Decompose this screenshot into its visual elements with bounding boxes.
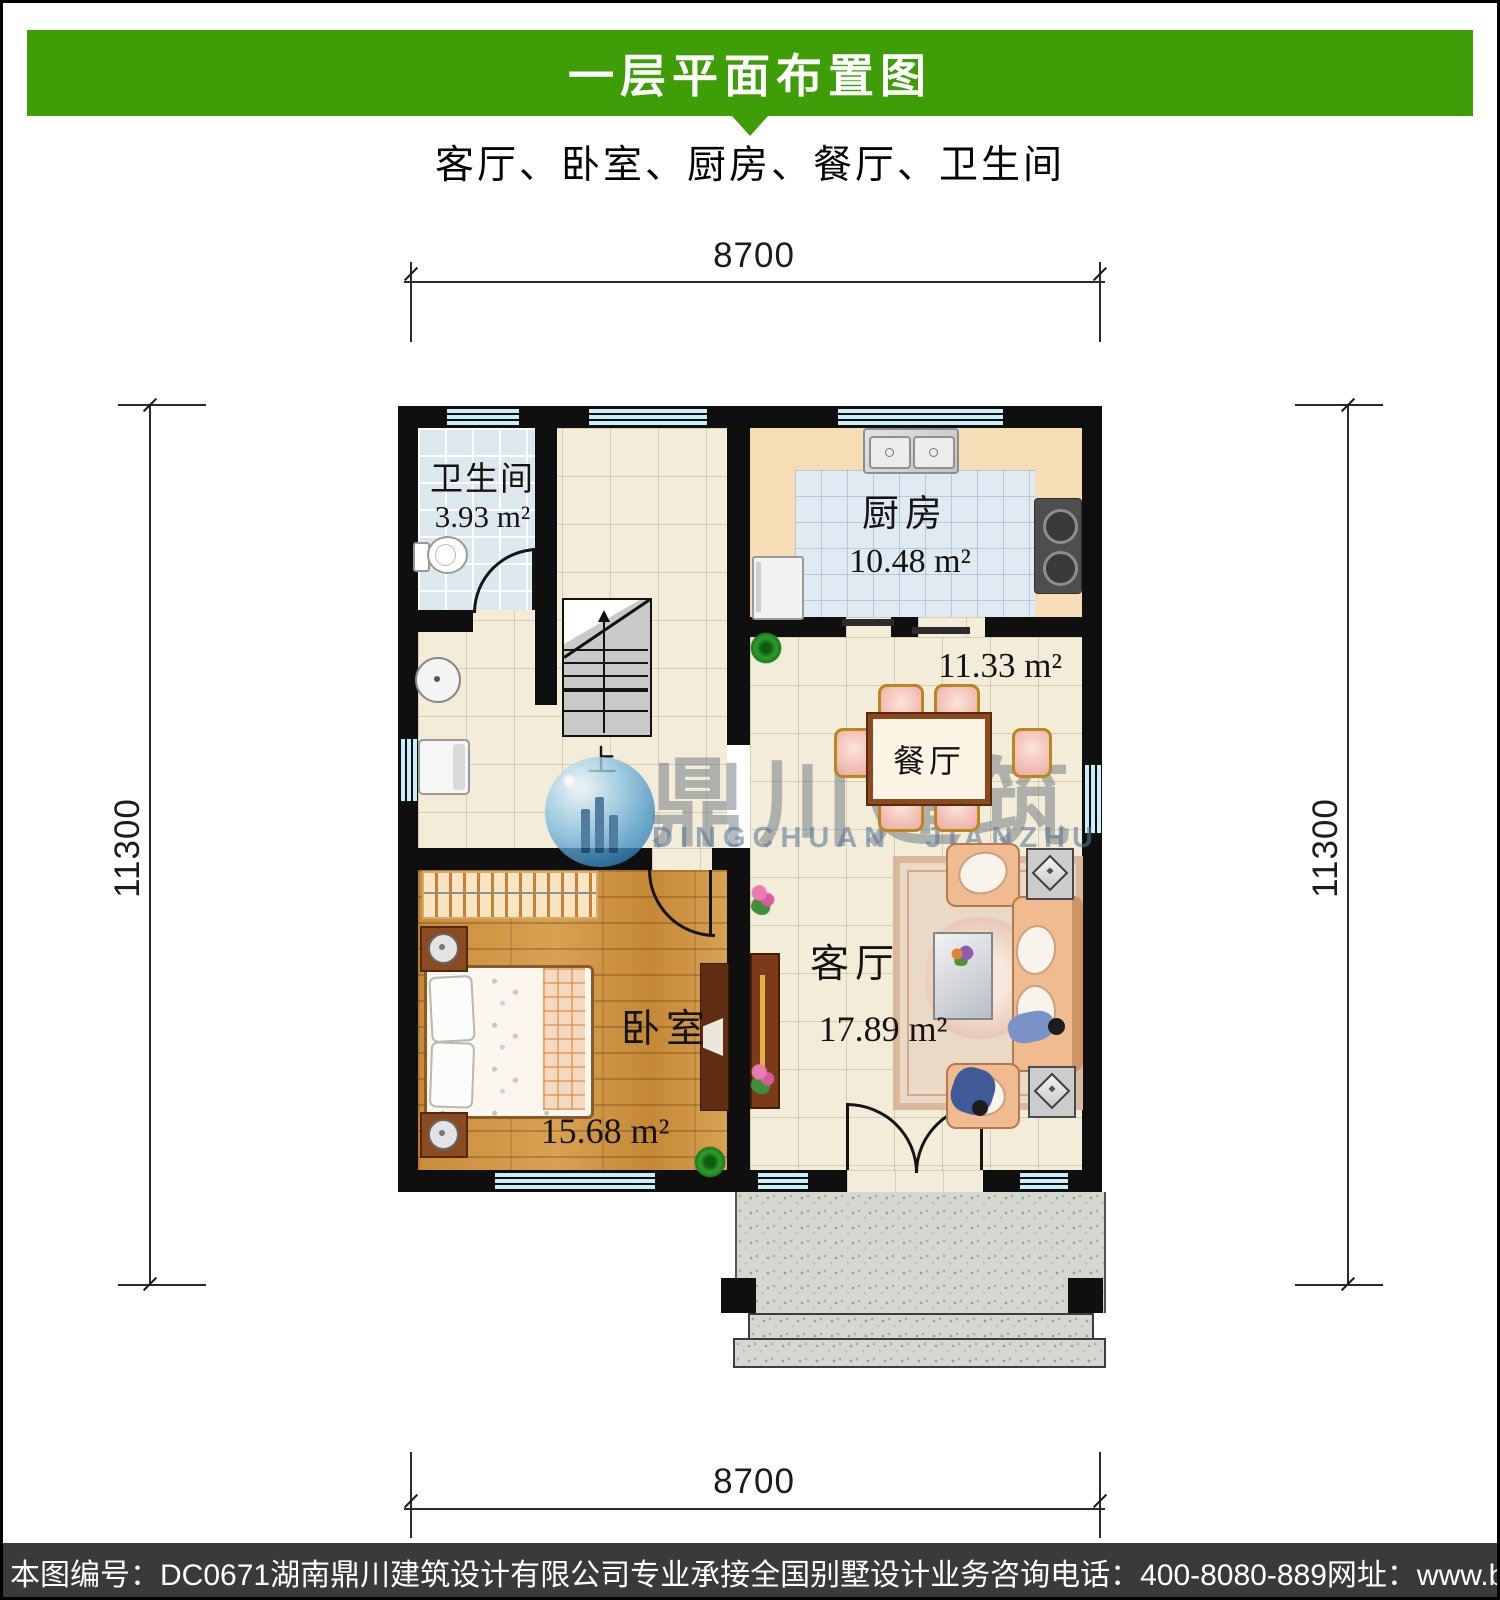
table-flowers-icon xyxy=(948,944,974,966)
dining-room-label: 餐厅 xyxy=(893,736,965,782)
kitchen-sliding-door xyxy=(842,619,894,626)
person-figure xyxy=(1048,1018,1065,1035)
dim-extension xyxy=(410,1452,412,1538)
dim-extension xyxy=(1295,1284,1383,1286)
dim-line-right xyxy=(1347,405,1349,1285)
sofa xyxy=(1012,896,1083,1072)
toilet-icon xyxy=(427,536,468,574)
dim-line-top xyxy=(404,281,1105,283)
room-list-subtitle: 客厅、卧室、厨房、餐厅、卫生间 xyxy=(0,134,1500,190)
kitchen-sliding-door xyxy=(912,627,970,634)
watermark-logo-icon xyxy=(545,757,655,867)
porch-column xyxy=(1068,1278,1103,1313)
window xyxy=(398,739,418,801)
dim-value-top: 8700 xyxy=(604,236,904,276)
porch-slab xyxy=(735,1192,1106,1313)
dim-extension xyxy=(1295,404,1383,406)
wall xyxy=(535,406,557,705)
window xyxy=(495,1170,655,1192)
dim-line-left xyxy=(149,405,151,1285)
kitchen-sink-icon xyxy=(863,428,959,474)
dining-chair xyxy=(1012,728,1052,778)
flower-icon xyxy=(748,881,776,915)
kitchen-label: 厨房 xyxy=(830,483,980,537)
porch-step xyxy=(733,1338,1106,1368)
bathroom-door-leaf xyxy=(532,548,535,610)
lamp-icon xyxy=(428,933,459,964)
drawing-number: 本图编号：DC0671 xyxy=(10,1550,270,1594)
stair-up-arrowhead xyxy=(598,610,610,622)
dim-line-bottom xyxy=(404,1508,1105,1510)
wall xyxy=(398,610,473,632)
window xyxy=(447,406,519,428)
dim-extension xyxy=(1099,1452,1101,1538)
stair-up-arrow xyxy=(603,620,605,728)
wardrobe xyxy=(422,871,598,919)
plant-icon xyxy=(750,632,782,664)
wash-basin-icon xyxy=(415,657,461,703)
sparkle-icon xyxy=(561,773,577,789)
burner xyxy=(1043,509,1078,544)
sink-basin xyxy=(913,436,955,469)
pillow xyxy=(428,975,475,1043)
bathroom-area: 3.93 m² xyxy=(418,499,547,535)
page-title: 一层平面布置图 xyxy=(568,40,932,106)
dim-value-right: 11300 xyxy=(1306,778,1346,918)
building-bar xyxy=(609,815,618,853)
bedroom-label: 卧室 xyxy=(600,998,732,1054)
company-line: 湖南鼎川建筑设计有限公司专业承接全国别墅设计业务 xyxy=(270,1550,990,1594)
dim-value-left: 11300 xyxy=(108,778,148,918)
fridge-icon xyxy=(752,556,804,620)
footer-bar: 本图编号：DC0671 湖南鼎川建筑设计有限公司专业承接全国别墅设计业务 咨询电… xyxy=(0,1543,1500,1600)
wall xyxy=(985,617,1082,637)
building-bar xyxy=(595,797,604,853)
door-opening xyxy=(847,1170,983,1192)
lamp-icon xyxy=(428,1119,459,1150)
dining-table: 餐厅 xyxy=(868,714,990,804)
porch-column xyxy=(721,1278,756,1313)
bed-blanket xyxy=(543,968,585,1110)
window xyxy=(589,406,707,428)
floor-plan-page: 一层平面布置图 客厅、卧室、厨房、餐厅、卫生间 8700 8700 11300 … xyxy=(0,0,1500,1600)
wall xyxy=(727,428,750,745)
stair-landing xyxy=(562,690,648,735)
dim-value-bottom: 8700 xyxy=(604,1462,904,1502)
bedroom-area: 15.68 m² xyxy=(505,1110,705,1152)
pillow xyxy=(429,1041,475,1108)
banner-pointer-icon xyxy=(732,116,768,136)
title-banner: 一层平面布置图 xyxy=(27,30,1473,116)
person-figure xyxy=(972,1100,988,1116)
entry-door-leaf-left xyxy=(846,1103,849,1170)
washing-machine-icon xyxy=(418,739,470,795)
burner xyxy=(1043,551,1078,586)
stove-icon xyxy=(1034,498,1082,594)
dim-extension xyxy=(118,404,206,406)
bathroom-label: 卫生间 xyxy=(420,452,545,500)
window xyxy=(1020,1170,1068,1192)
dim-extension xyxy=(118,1284,206,1286)
window xyxy=(838,406,1003,428)
sink-basin xyxy=(869,436,911,469)
living-room-area: 17.89 m² xyxy=(783,1008,983,1050)
phone-line: 咨询电话：400-8080-889 xyxy=(990,1550,1327,1594)
building-bar xyxy=(581,809,590,853)
kitchen-area: 10.48 m² xyxy=(820,543,1000,581)
bedroom-door-leaf xyxy=(709,870,712,934)
stair-landing-line xyxy=(562,710,648,712)
living-room-label: 客厅 xyxy=(790,933,920,989)
window xyxy=(758,1170,808,1192)
flower-icon xyxy=(748,1060,776,1094)
dining-area: 11.33 m² xyxy=(905,646,1095,686)
website-line: 网址：www.bstzcs.com xyxy=(1327,1550,1500,1594)
